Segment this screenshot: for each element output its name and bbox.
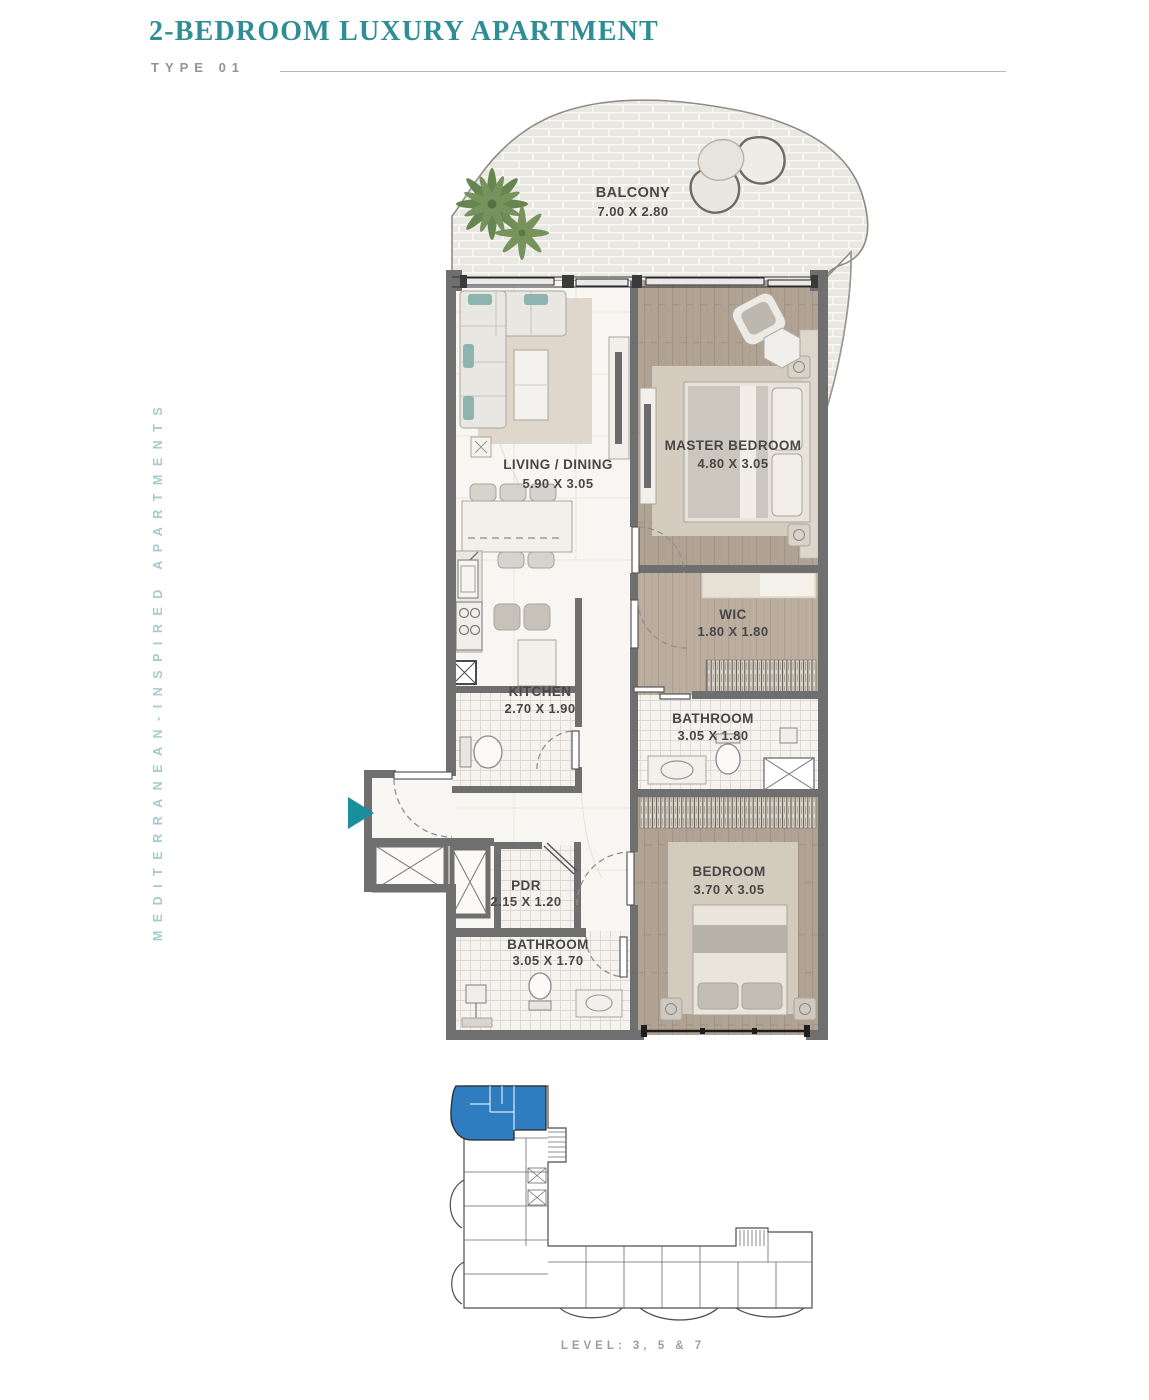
bedroom2-label: BEDROOM <box>692 864 765 879</box>
closet-shafts <box>374 845 488 916</box>
bathroom2-label: BATHROOM <box>507 937 589 952</box>
master-dims: 4.80 X 3.05 <box>698 456 769 471</box>
master-label: MASTER BEDROOM <box>665 438 802 453</box>
living-label: LIVING / DINING <box>503 457 613 472</box>
bathroom1-label: BATHROOM <box>672 711 754 726</box>
wic-label: WIC <box>719 607 746 622</box>
key-plan <box>450 1086 812 1320</box>
balcony-label: BALCONY <box>596 185 671 201</box>
kitchen-dims: 2.70 X 1.90 <box>505 701 576 716</box>
balcony-dims: 7.00 X 2.80 <box>598 204 669 219</box>
living-dims: 5.90 X 3.05 <box>523 476 594 491</box>
floorplan-page: 2-BEDROOM LUXURY APARTMENT TYPE 01 MEDIT… <box>0 0 1149 1400</box>
pdr-dims: 2.15 X 1.20 <box>491 894 562 909</box>
toilet-room-fixtures <box>460 736 502 768</box>
bathroom2-dims: 3.05 X 1.70 <box>513 953 584 968</box>
highlighted-unit <box>451 1086 546 1140</box>
kitchen-label: KITCHEN <box>509 684 572 699</box>
bedroom2-dims: 3.70 X 3.05 <box>694 882 765 897</box>
pdr-label: PDR <box>511 878 541 893</box>
level-label: LEVEL: 3, 5 & 7 <box>561 1340 705 1352</box>
wic-dims: 1.80 X 1.80 <box>698 624 769 639</box>
bathroom1-dims: 3.05 X 1.80 <box>678 728 749 743</box>
floor-plan-drawing: BALCONY 7.00 X 2.80 LIVING / DINING 5.90… <box>0 0 1149 1400</box>
